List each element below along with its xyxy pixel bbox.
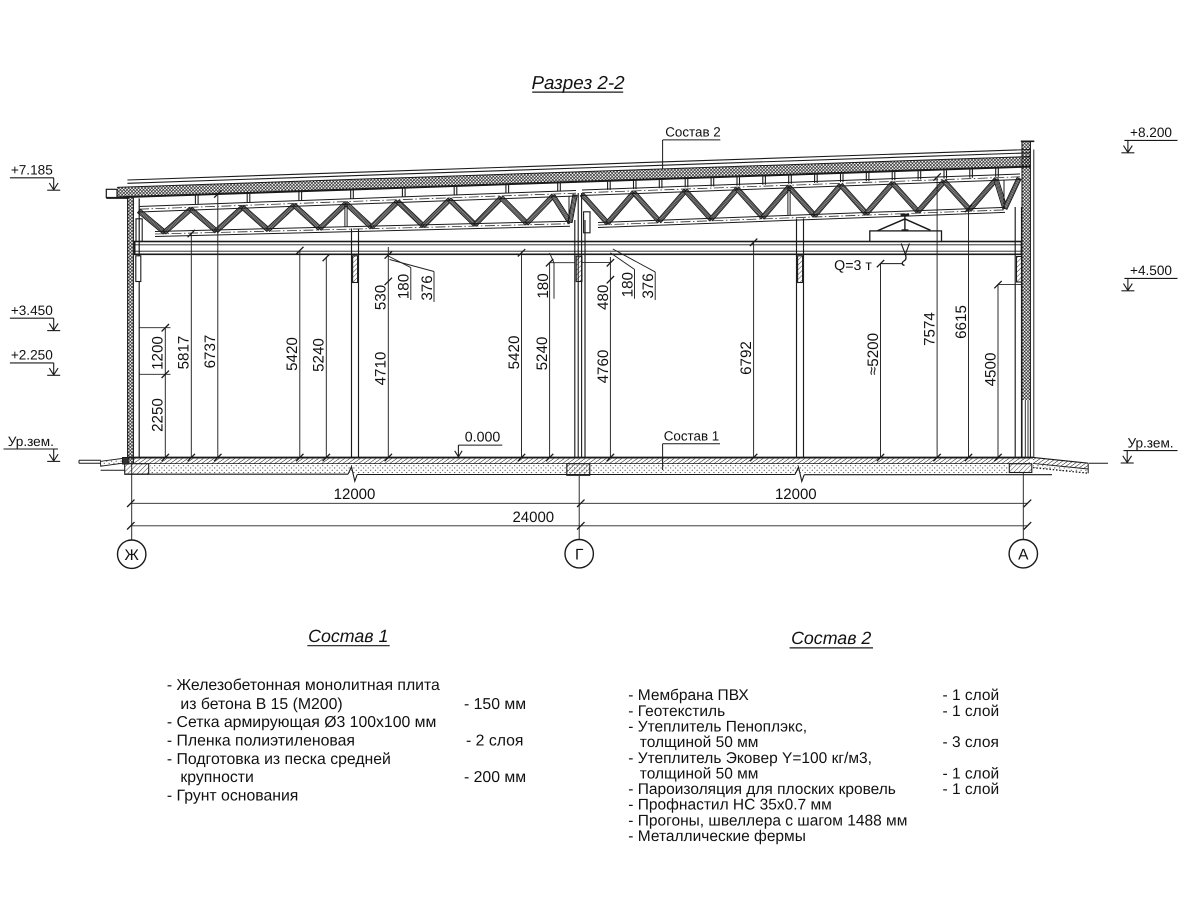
svg-text:толщиной 50 мм: толщиной 50 мм bbox=[640, 765, 759, 782]
svg-text:- 2 слоя: - 2 слоя bbox=[466, 733, 523, 750]
svg-text:4760: 4760 bbox=[595, 350, 612, 384]
svg-text:5240: 5240 bbox=[534, 337, 551, 371]
svg-text:+7.185: +7.185 bbox=[11, 163, 53, 178]
svg-text:- Утеплитель Эковер Y=100 кг/м: - Утеплитель Эковер Y=100 кг/м3, bbox=[628, 750, 872, 767]
svg-text:- 1 слой: - 1 слой bbox=[943, 687, 1000, 704]
svg-text:180: 180 bbox=[396, 274, 413, 299]
svg-text:12000: 12000 bbox=[775, 486, 817, 503]
svg-text:- Профнастил НС 35х0.7 мм: - Профнастил НС 35х0.7 мм bbox=[628, 797, 832, 814]
svg-text:6792: 6792 bbox=[738, 341, 755, 375]
svg-text:- 1 слой: - 1 слой bbox=[943, 765, 1000, 782]
svg-text:376: 376 bbox=[419, 275, 436, 300]
svg-text:Состав 2: Состав 2 bbox=[791, 628, 871, 648]
svg-text:Состав 1: Состав 1 bbox=[308, 626, 388, 646]
svg-text:≈5200: ≈5200 bbox=[865, 333, 882, 375]
svg-text:Состав 2: Состав 2 bbox=[665, 124, 721, 139]
svg-text:+8.200: +8.200 bbox=[1130, 125, 1172, 140]
svg-text:- 1 слой: - 1 слой bbox=[943, 781, 1000, 798]
svg-text:- Металлические фермы: - Металлические фермы bbox=[628, 828, 806, 845]
svg-text:- Геотекстиль: - Геотекстиль bbox=[628, 703, 725, 720]
svg-text:Разрез 2-2: Разрез 2-2 bbox=[531, 72, 625, 93]
svg-text:+3.450: +3.450 bbox=[11, 303, 53, 318]
svg-text:- Сетка армирующая Ø3 100х100: - Сетка армирующая Ø3 100х100 мм bbox=[167, 714, 437, 731]
svg-text:- Грунт основания: - Грунт основания bbox=[167, 788, 298, 805]
svg-text:- Прогоны, швеллера с шагом 14: - Прогоны, швеллера с шагом 1488 мм bbox=[628, 812, 907, 829]
svg-text:6737: 6737 bbox=[202, 335, 219, 369]
svg-text:А: А bbox=[1018, 546, 1029, 563]
svg-text:- Пленка полиэтиленовая: - Пленка полиэтиленовая bbox=[167, 733, 355, 750]
svg-text:Ур.зем.: Ур.зем. bbox=[8, 434, 54, 449]
svg-text:2250: 2250 bbox=[150, 398, 167, 432]
svg-text:Ж: Ж bbox=[125, 547, 140, 564]
svg-text:- Мембрана ПВХ: - Мембрана ПВХ bbox=[628, 687, 749, 704]
svg-text:6615: 6615 bbox=[953, 305, 970, 339]
svg-text:530: 530 bbox=[373, 285, 390, 310]
svg-text:7574: 7574 bbox=[922, 312, 939, 346]
svg-text:24000: 24000 bbox=[512, 509, 554, 526]
svg-text:+2.250: +2.250 bbox=[11, 348, 53, 363]
svg-text:180: 180 bbox=[535, 273, 552, 298]
svg-text:5817: 5817 bbox=[176, 336, 193, 370]
svg-text:5420: 5420 bbox=[506, 336, 523, 370]
svg-text:Г: Г bbox=[575, 546, 584, 563]
svg-text:- 200 мм: - 200 мм bbox=[464, 769, 526, 786]
svg-text:+4.500: +4.500 bbox=[1130, 263, 1172, 278]
svg-text:- Пароизоляция для плоских кро: - Пароизоляция для плоских кровель bbox=[628, 781, 896, 798]
svg-text:- 1 слой: - 1 слой bbox=[943, 703, 1000, 720]
svg-text:0.000: 0.000 bbox=[465, 429, 501, 445]
svg-text:- 3 слоя: - 3 слоя bbox=[943, 734, 999, 751]
svg-text:1200: 1200 bbox=[150, 336, 167, 370]
svg-text:- Утеплитель Пеноплэкс,: - Утеплитель Пеноплэкс, bbox=[628, 719, 807, 736]
svg-text:480: 480 bbox=[595, 285, 612, 310]
svg-text:Q=3 т: Q=3 т bbox=[834, 258, 872, 274]
svg-text:4710: 4710 bbox=[373, 352, 390, 386]
svg-text:- Железобетонная монолитная п: - Железобетонная монолитная плита bbox=[167, 677, 440, 694]
svg-text:Состав 1: Состав 1 bbox=[664, 428, 720, 443]
svg-text:180: 180 bbox=[619, 272, 636, 297]
svg-text:- Подготовка из песка средней: - Подготовка из песка средней bbox=[167, 751, 391, 768]
svg-text:толщиной 50 мм: толщиной 50 мм bbox=[640, 734, 759, 751]
svg-text:крупности: крупности bbox=[180, 769, 253, 786]
svg-text:- 150 мм: - 150 мм bbox=[464, 696, 526, 713]
svg-text:5420: 5420 bbox=[284, 337, 301, 371]
svg-text:из бетона В 15 (М200): из бетона В 15 (М200) bbox=[180, 696, 342, 713]
svg-text:5240: 5240 bbox=[311, 338, 328, 372]
svg-text:376: 376 bbox=[640, 273, 657, 298]
svg-text:12000: 12000 bbox=[334, 486, 376, 503]
svg-text:4500: 4500 bbox=[982, 353, 999, 387]
svg-text:Ур.зем.: Ур.зем. bbox=[1127, 435, 1173, 450]
